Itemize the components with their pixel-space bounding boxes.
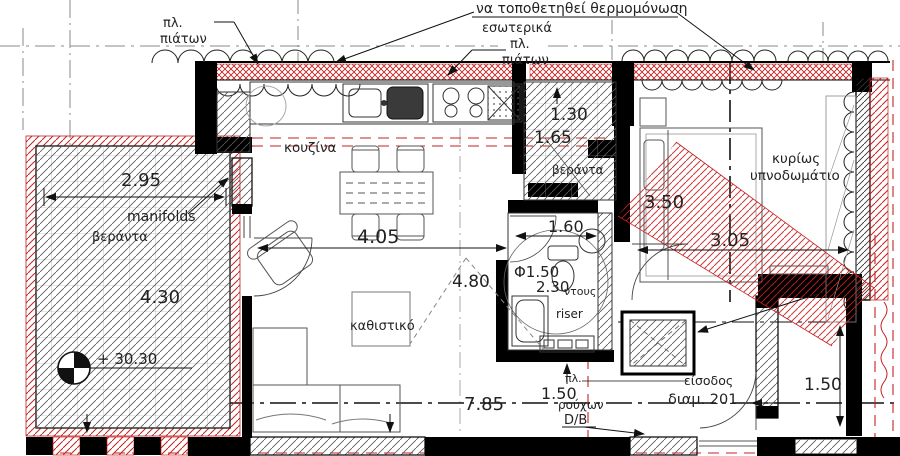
dim-bed-w: 3.05 xyxy=(710,230,750,251)
entrance-label: είσοδος xyxy=(684,373,733,388)
dim-living-d: 4.80 xyxy=(452,272,490,292)
room-shower: ντους xyxy=(564,285,596,298)
stove xyxy=(433,84,522,122)
floor-plan-drawing: να τοποθετηθεί θερμομόνωση εσωτερικά πλ.… xyxy=(0,0,900,456)
riser-label: riser xyxy=(556,307,583,321)
red-squiggle xyxy=(881,302,887,398)
insulation-note: να τοποθετηθεί θερμομόνωση xyxy=(476,1,688,17)
room-veranda-mid: βεράντα xyxy=(552,163,604,177)
shaft xyxy=(622,312,694,374)
dim-total-w: 7.85 xyxy=(464,394,504,415)
nightstand xyxy=(640,98,666,126)
pl-label-b: πλ. xyxy=(163,16,183,31)
platon-label-a: πιάτων xyxy=(502,53,549,68)
dim-balcony-w: 2.95 xyxy=(121,170,161,191)
dim-bath-w: 1.60 xyxy=(548,217,584,236)
interior-label: εσωτερικά xyxy=(482,21,552,36)
sofa xyxy=(253,328,400,432)
kitchen-counter xyxy=(217,82,522,152)
manifolds-label: manifolds xyxy=(127,209,196,225)
room-bedroom-1: κυρίως xyxy=(772,151,820,167)
apartment-label: διαμ. 201 xyxy=(668,392,737,408)
level-value: + 30.30 xyxy=(97,350,157,368)
db-label: D/B xyxy=(564,413,587,428)
dim-living-w: 4.05 xyxy=(357,226,399,248)
room-balcony-left: βεράντα xyxy=(92,230,148,245)
dim-balcony-h: 4.30 xyxy=(140,287,180,308)
bottom-wall xyxy=(250,437,900,456)
dim-veranda-h: 1.65 xyxy=(534,128,572,148)
dim-corridor: 1.50 xyxy=(804,375,842,395)
pl-label-a: πλ. xyxy=(510,37,530,52)
dim-veranda-w: 1.30 xyxy=(550,105,588,125)
room-kitchen: κουζίνα xyxy=(284,140,336,156)
balcony-parapet xyxy=(26,437,250,456)
armchair xyxy=(245,218,320,291)
right-exterior-wall xyxy=(856,78,888,300)
kitchen-sink xyxy=(343,84,428,122)
laundry-word: ρούχων xyxy=(558,398,604,412)
platon-label-b: πιάτων xyxy=(160,32,207,47)
dim-bed-side: 3.50 xyxy=(644,192,684,213)
floor-plan-page: να τοποθετηθεί θερμομόνωση εσωτερικά πλ.… xyxy=(0,0,900,456)
room-living: καθιστικό xyxy=(350,319,415,334)
room-bedroom-2: υπνοδωμάτιο xyxy=(750,168,840,184)
